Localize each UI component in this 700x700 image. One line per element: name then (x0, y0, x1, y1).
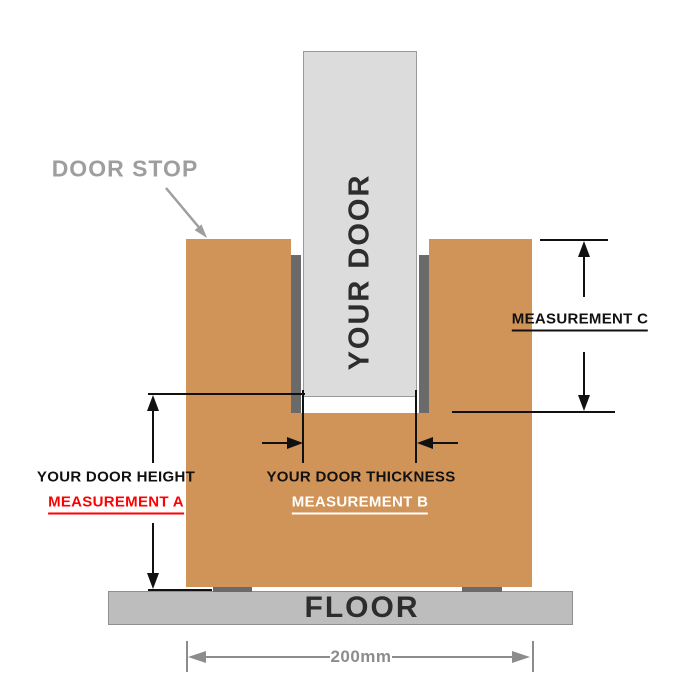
measurement-a-bottom-line (148, 589, 212, 591)
door-stop-right (419, 255, 429, 413)
dimension-200mm-left-shaft (204, 656, 330, 658)
measurement-b-right-shaft (432, 442, 458, 444)
door-height-title: YOUR DOOR HEIGHT (37, 469, 195, 486)
measurement-b-right-pointing-arrowhead-icon (287, 437, 303, 449)
dimension-200mm-right-arrowhead-icon (512, 651, 530, 663)
measurement-c-label: MEASUREMENT C (512, 311, 648, 332)
door-stop-left (291, 255, 301, 413)
door-measurement-diagram: YOUR DOOR FLOOR DOOR STOP YOUR DOOR HEIG… (0, 0, 700, 700)
measurement-b-left-shaft (262, 442, 288, 444)
measurement-c-lower-shaft (583, 352, 585, 397)
door-thickness-title: YOUR DOOR THICKNESS (266, 469, 455, 486)
measurement-c-upper-shaft (583, 255, 585, 297)
door-stop-callout-arrow-icon (158, 180, 218, 244)
measurement-c-down-arrowhead-icon (578, 395, 590, 411)
dimension-200mm-right-tick (532, 641, 534, 672)
measurement-a-label: MEASUREMENT A (48, 494, 184, 515)
measurement-a-lower-shaft (152, 523, 154, 575)
frame-foot-left (213, 587, 252, 592)
measurement-b-right-extension-line (415, 390, 417, 463)
frame-foot-right (462, 587, 502, 592)
dimension-200mm-right-shaft (392, 656, 514, 658)
measurement-c-bottom-line (452, 411, 615, 413)
measurement-b-left-extension-line (302, 390, 304, 463)
measurement-b-label: MEASUREMENT B (292, 494, 428, 515)
door-frame-left-jamb (186, 239, 291, 587)
door-label: YOUR DOOR (344, 174, 377, 371)
measurement-a-down-arrowhead-icon (147, 573, 159, 589)
door-stop-callout-label: DOOR STOP (52, 156, 199, 183)
door-frame-right-jamb (429, 239, 532, 587)
measurement-c-top-line (540, 239, 608, 241)
measurement-b-left-pointing-arrowhead-icon (417, 437, 433, 449)
measurement-a-top-line (148, 393, 305, 395)
dimension-200mm-label: 200mm (330, 647, 391, 667)
measurement-a-upper-shaft (152, 408, 154, 463)
floor-label: FLOOR (305, 591, 420, 625)
